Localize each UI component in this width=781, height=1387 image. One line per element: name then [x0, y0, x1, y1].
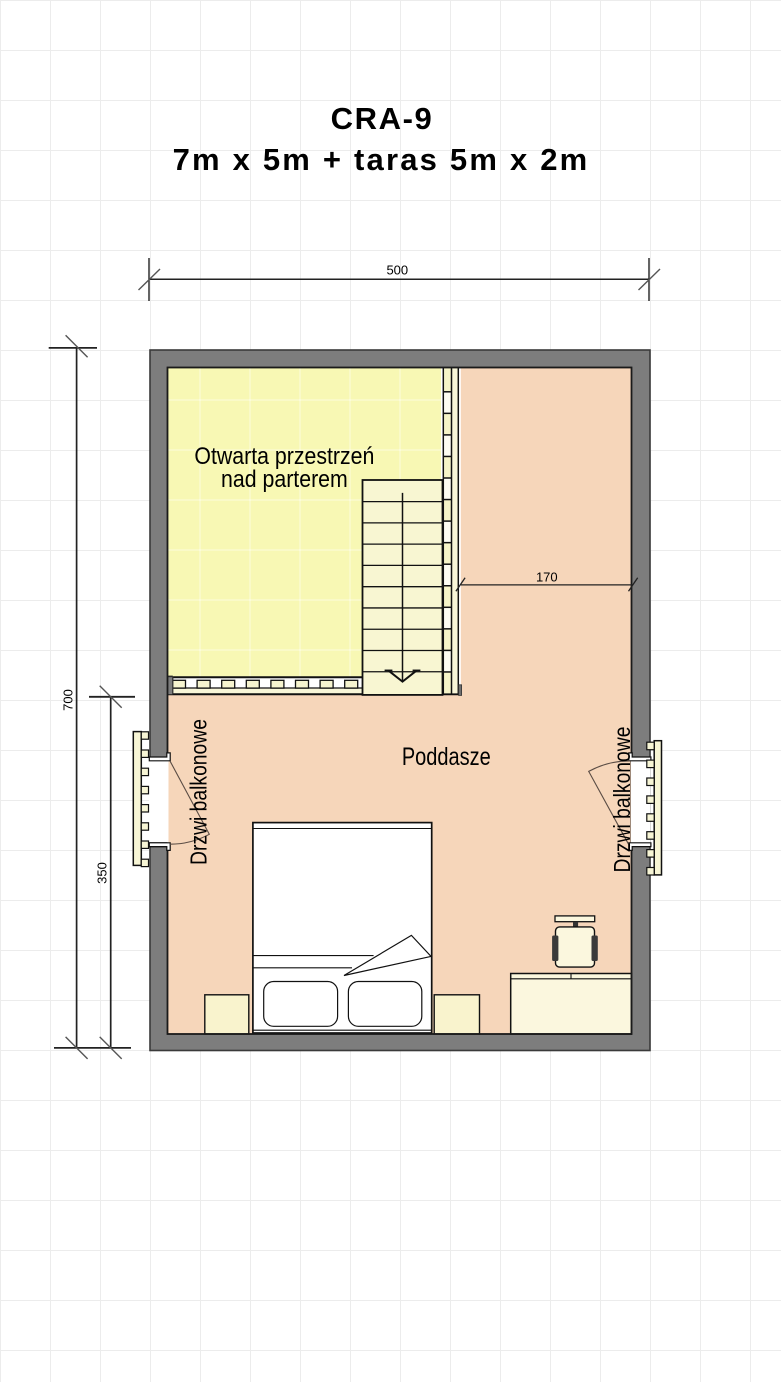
svg-text:Poddasze: Poddasze — [402, 743, 491, 771]
svg-text:700: 700 — [61, 689, 76, 711]
svg-text:7m x 5m + taras 5m x 2m: 7m x 5m + taras 5m x 2m — [173, 142, 590, 177]
svg-text:350: 350 — [95, 862, 110, 884]
svg-text:Drzwi balkonowe: Drzwi balkonowe — [187, 719, 212, 865]
svg-text:500: 500 — [386, 263, 408, 278]
svg-text:CRA-9: CRA-9 — [331, 101, 434, 136]
svg-text:170: 170 — [536, 570, 558, 585]
svg-text:Drzwi balkonowe: Drzwi balkonowe — [610, 727, 635, 873]
svg-text:nad parterem: nad parterem — [221, 465, 348, 493]
